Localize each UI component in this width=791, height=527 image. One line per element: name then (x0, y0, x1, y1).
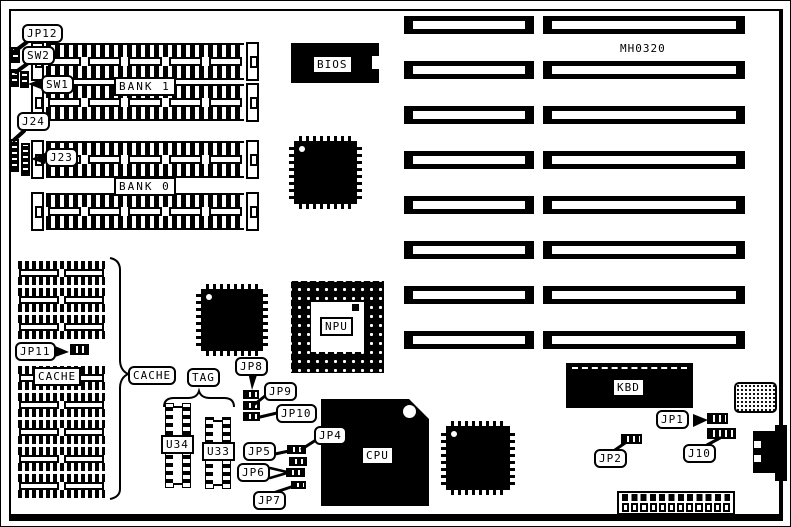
cache-chip-label: CACHE (33, 367, 81, 386)
jp11-arrow (55, 346, 69, 357)
motherboard-diagram: BANK 1 BANK 0 JP12 SW2 SW1 J24 J23 BIOS … (0, 0, 791, 527)
bios-label: BIOS (312, 55, 353, 74)
label-jp8: JP8 (235, 357, 268, 376)
label-jp4: JP4 (314, 426, 347, 445)
label-jp5: JP5 (243, 442, 276, 461)
tag-label: TAG (187, 368, 220, 387)
cpu-label: CPU (361, 446, 394, 465)
label-jp12: JP12 (22, 24, 63, 43)
bank1-label: BANK 1 (114, 77, 176, 96)
label-jp9: JP9 (264, 382, 297, 401)
label-sw1: SW1 (41, 75, 74, 94)
u33-label: U33 (202, 442, 235, 461)
label-j10: J10 (683, 444, 716, 463)
label-j23: J23 (45, 148, 78, 167)
label-jp2: JP2 (594, 449, 627, 468)
label-jp10: JP10 (276, 404, 317, 423)
label-jp6: JP6 (237, 463, 270, 482)
u34-label: U34 (161, 435, 194, 454)
cache-group-label: CACHE (128, 366, 176, 385)
label-jp11: JP11 (15, 342, 56, 361)
sw1-arrow (28, 79, 41, 89)
label-jp7: JP7 (253, 491, 286, 510)
label-sw2: SW2 (22, 46, 55, 65)
cache-group-brace (110, 258, 128, 499)
tag-brace (164, 391, 234, 407)
label-jp1: JP1 (656, 410, 689, 429)
jp1-arrow (693, 414, 708, 427)
part-number-text: MH0320 (620, 42, 666, 55)
kbd-label: KBD (612, 378, 645, 397)
bank0-label: BANK 0 (114, 177, 176, 196)
label-j24: J24 (17, 112, 50, 131)
npu-label: NPU (320, 317, 353, 336)
j23-arrow (31, 153, 45, 164)
